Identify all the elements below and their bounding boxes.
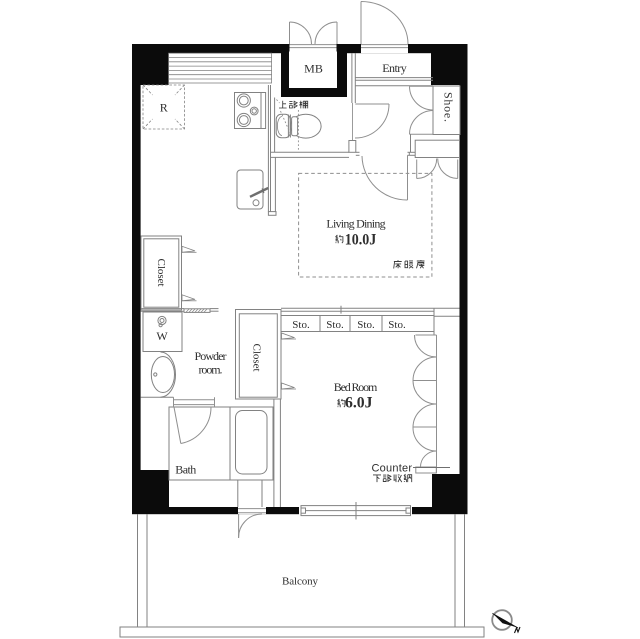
svg-text:Bath: Bath	[175, 463, 196, 477]
svg-text:Counter: Counter	[372, 463, 413, 475]
svg-text:W: W	[156, 329, 168, 343]
svg-text:Balcony: Balcony	[282, 576, 319, 588]
svg-text:6.0J: 6.0J	[345, 395, 373, 412]
svg-text:Living Dining: Living Dining	[326, 217, 385, 231]
svg-text:Sto.: Sto.	[292, 319, 310, 331]
svg-text:Closet: Closet	[155, 259, 167, 287]
svg-text:Bed Room: Bed Room	[334, 380, 378, 394]
svg-text:Entry: Entry	[382, 61, 407, 75]
svg-text:Powder: Powder	[195, 349, 227, 363]
svg-text:room.: room.	[199, 363, 223, 377]
svg-text:Sto.: Sto.	[357, 319, 375, 331]
svg-text:10.0J: 10.0J	[345, 232, 377, 249]
svg-text:Sto.: Sto.	[388, 319, 406, 331]
svg-text:R: R	[160, 101, 168, 115]
svg-text:Closet: Closet	[251, 344, 263, 372]
svg-text:Sto.: Sto.	[326, 319, 344, 331]
svg-text:MB: MB	[304, 62, 323, 76]
svg-text:Shoe.: Shoe.	[442, 92, 456, 122]
